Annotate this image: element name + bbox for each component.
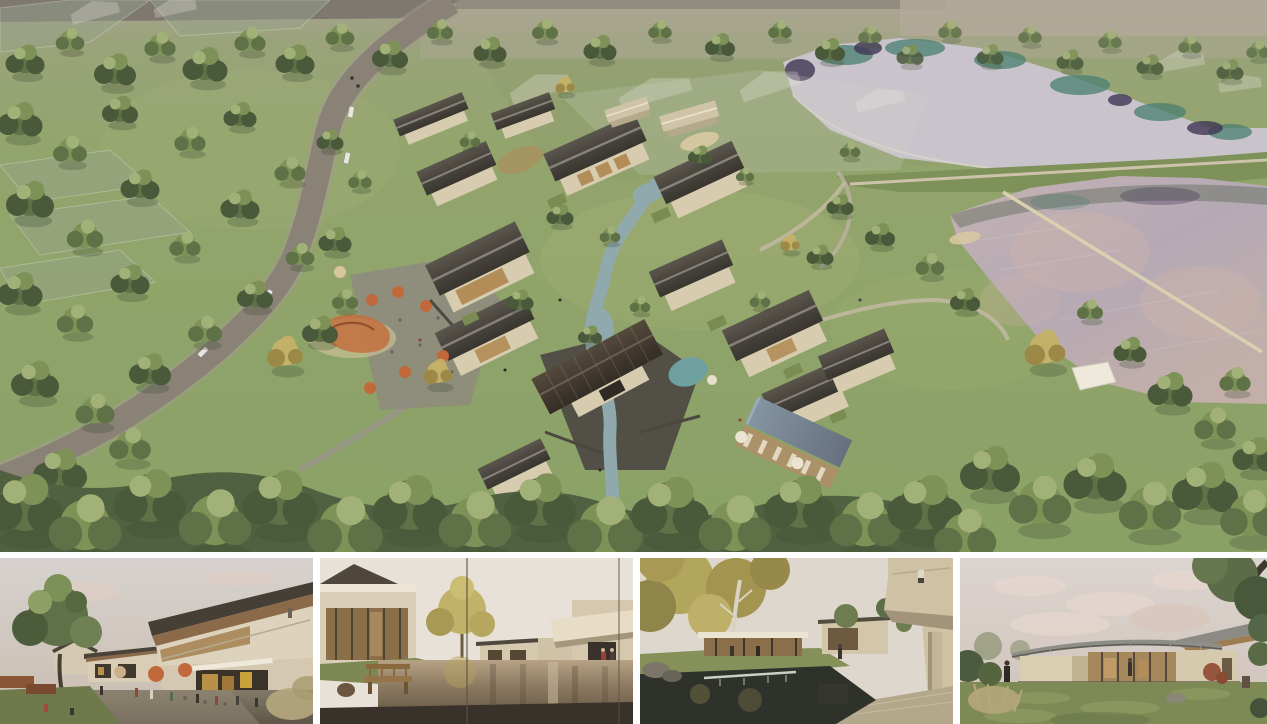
open-pavilion: [698, 632, 808, 656]
garden-pavilion-svg: [960, 558, 1267, 724]
street-cafe-svg: [0, 558, 313, 724]
person-by-pond: [838, 644, 842, 659]
aerial-scene-svg: [0, 0, 1267, 552]
aerial-site-render: [0, 0, 1267, 552]
balcony-person: [918, 566, 924, 583]
thumbnail-strip: [0, 558, 1267, 724]
figure: [1004, 660, 1010, 682]
thumbnail-courtyard-waterfall-view: [640, 558, 953, 724]
presentation-board: [0, 0, 1267, 724]
cafe-sign: [240, 672, 252, 688]
thumbnail-garden-pavilion-view: [960, 558, 1267, 724]
courtyard-waterfall-svg: [640, 558, 953, 724]
thumbnail-street-cafe-view: [0, 558, 313, 724]
thumbnail-courtyard-pond-view: [320, 558, 633, 724]
interior-figure: [1128, 658, 1132, 676]
courtyard-pond-svg: [320, 558, 633, 724]
glass-mullion: [466, 558, 468, 724]
